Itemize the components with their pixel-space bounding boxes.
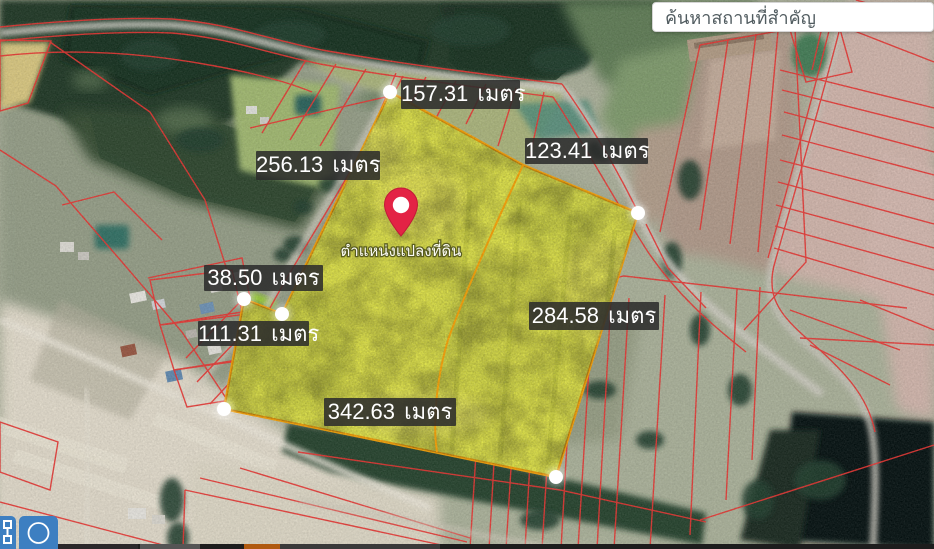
svg-text:ตำแหน่งแปลงที่ดิน: ตำแหน่งแปลงที่ดิน [341, 240, 462, 260]
